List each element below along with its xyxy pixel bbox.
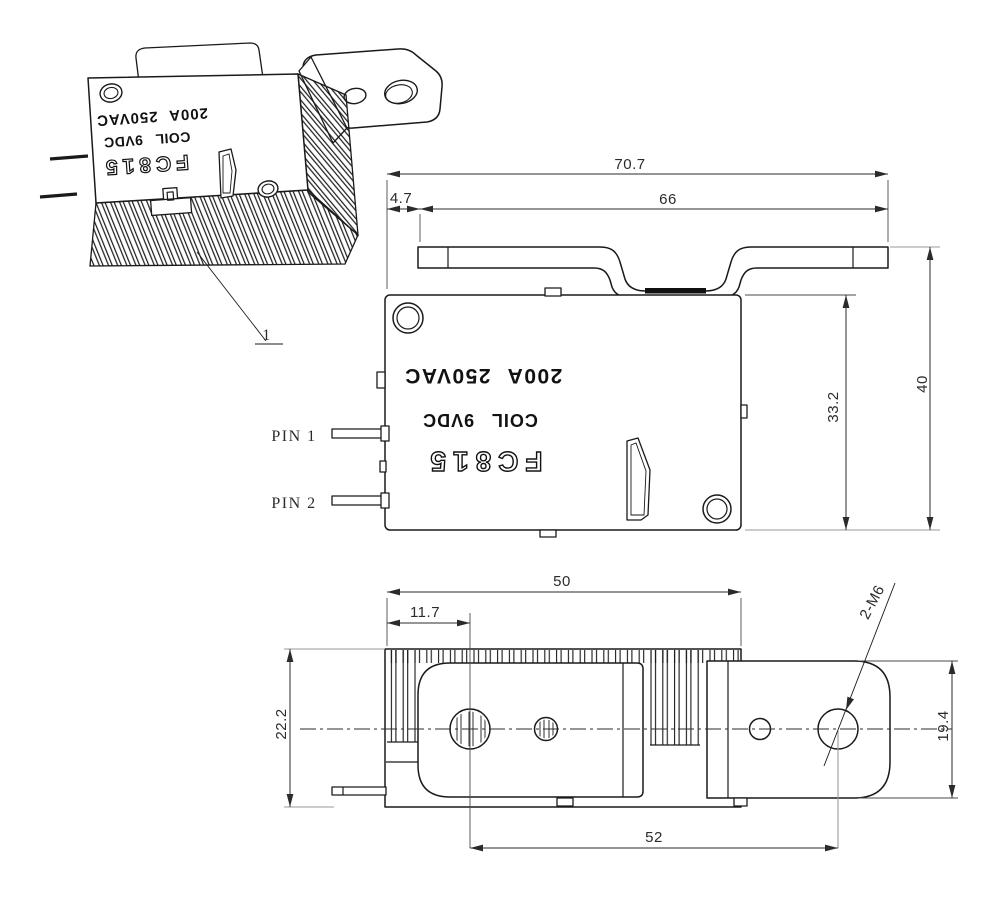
dim-66: 66 bbox=[420, 191, 888, 209]
pin-2 bbox=[40, 194, 77, 197]
svg-text:70.7: 70.7 bbox=[614, 156, 645, 173]
pin-1-base bbox=[381, 426, 389, 441]
dim-50: 50 bbox=[387, 573, 741, 592]
svg-text:66: 66 bbox=[659, 191, 677, 208]
pin-1 bbox=[332, 429, 385, 438]
svg-text:19.4: 19.4 bbox=[935, 710, 952, 741]
product-coil-text: COIL 9VDC bbox=[422, 410, 538, 430]
body-bottom-tab bbox=[734, 798, 747, 806]
dim-22-2: 22.2 bbox=[273, 649, 290, 807]
pin-1 bbox=[50, 156, 88, 159]
body-right-tab bbox=[741, 405, 747, 418]
thread-callout-label: 2-M6 bbox=[856, 582, 888, 622]
svg-text:22.2: 22.2 bbox=[273, 708, 290, 739]
drawing-canvas: 200A 250VAC COIL 9VDC FC815 1 200A 250V bbox=[0, 0, 1000, 913]
body-bottom-tab bbox=[557, 798, 573, 806]
body-top-tab bbox=[545, 288, 561, 296]
body-left-tab bbox=[377, 372, 385, 388]
pin-2-label: PIN 2 bbox=[271, 495, 316, 512]
dim-70-7: 70.7 bbox=[387, 156, 888, 174]
dim-11-7: 11.7 bbox=[387, 604, 470, 623]
body-bottom-tab bbox=[540, 530, 556, 537]
svg-text:50: 50 bbox=[553, 573, 571, 590]
dim-52: 52 bbox=[470, 829, 838, 848]
dim-40: 40 bbox=[914, 247, 931, 530]
terminal-plate-right bbox=[707, 661, 890, 798]
dim-33-2: 33.2 bbox=[825, 295, 846, 530]
svg-text:40: 40 bbox=[914, 375, 931, 393]
svg-text:11.7: 11.7 bbox=[410, 604, 440, 621]
heatsink-fins-middle bbox=[650, 650, 700, 745]
dim-19-4: 19.4 bbox=[935, 661, 952, 798]
product-model-text: FC815 bbox=[423, 446, 542, 477]
bottom-view: 50 11.7 22.2 19.4 52 2-M6 bbox=[273, 573, 958, 848]
body-left-tab-small bbox=[380, 461, 386, 472]
svg-text:4.7: 4.7 bbox=[390, 190, 412, 207]
pin-top-view bbox=[332, 787, 386, 795]
balloon-1: 1 bbox=[262, 327, 272, 344]
heatsink-fins-left bbox=[387, 650, 418, 742]
pin-1-label: PIN 1 bbox=[271, 428, 316, 445]
pin-2-base bbox=[381, 493, 389, 508]
pin-2 bbox=[332, 496, 385, 505]
product-rating-text: 200A 250VAC bbox=[404, 364, 563, 387]
isometric-view: 200A 250VAC COIL 9VDC FC815 1 bbox=[40, 43, 442, 344]
svg-text:52: 52 bbox=[645, 829, 663, 846]
busbar-contact-pad bbox=[645, 288, 706, 294]
dim-4-7: 4.7 bbox=[387, 190, 420, 209]
front-view: 200A 250VAC COIL 9VDC FC815 PIN 1 PIN 2 … bbox=[271, 156, 940, 537]
engineering-drawing: 200A 250VAC COIL 9VDC FC815 1 200A 250V bbox=[0, 0, 1000, 913]
svg-text:33.2: 33.2 bbox=[825, 391, 842, 422]
